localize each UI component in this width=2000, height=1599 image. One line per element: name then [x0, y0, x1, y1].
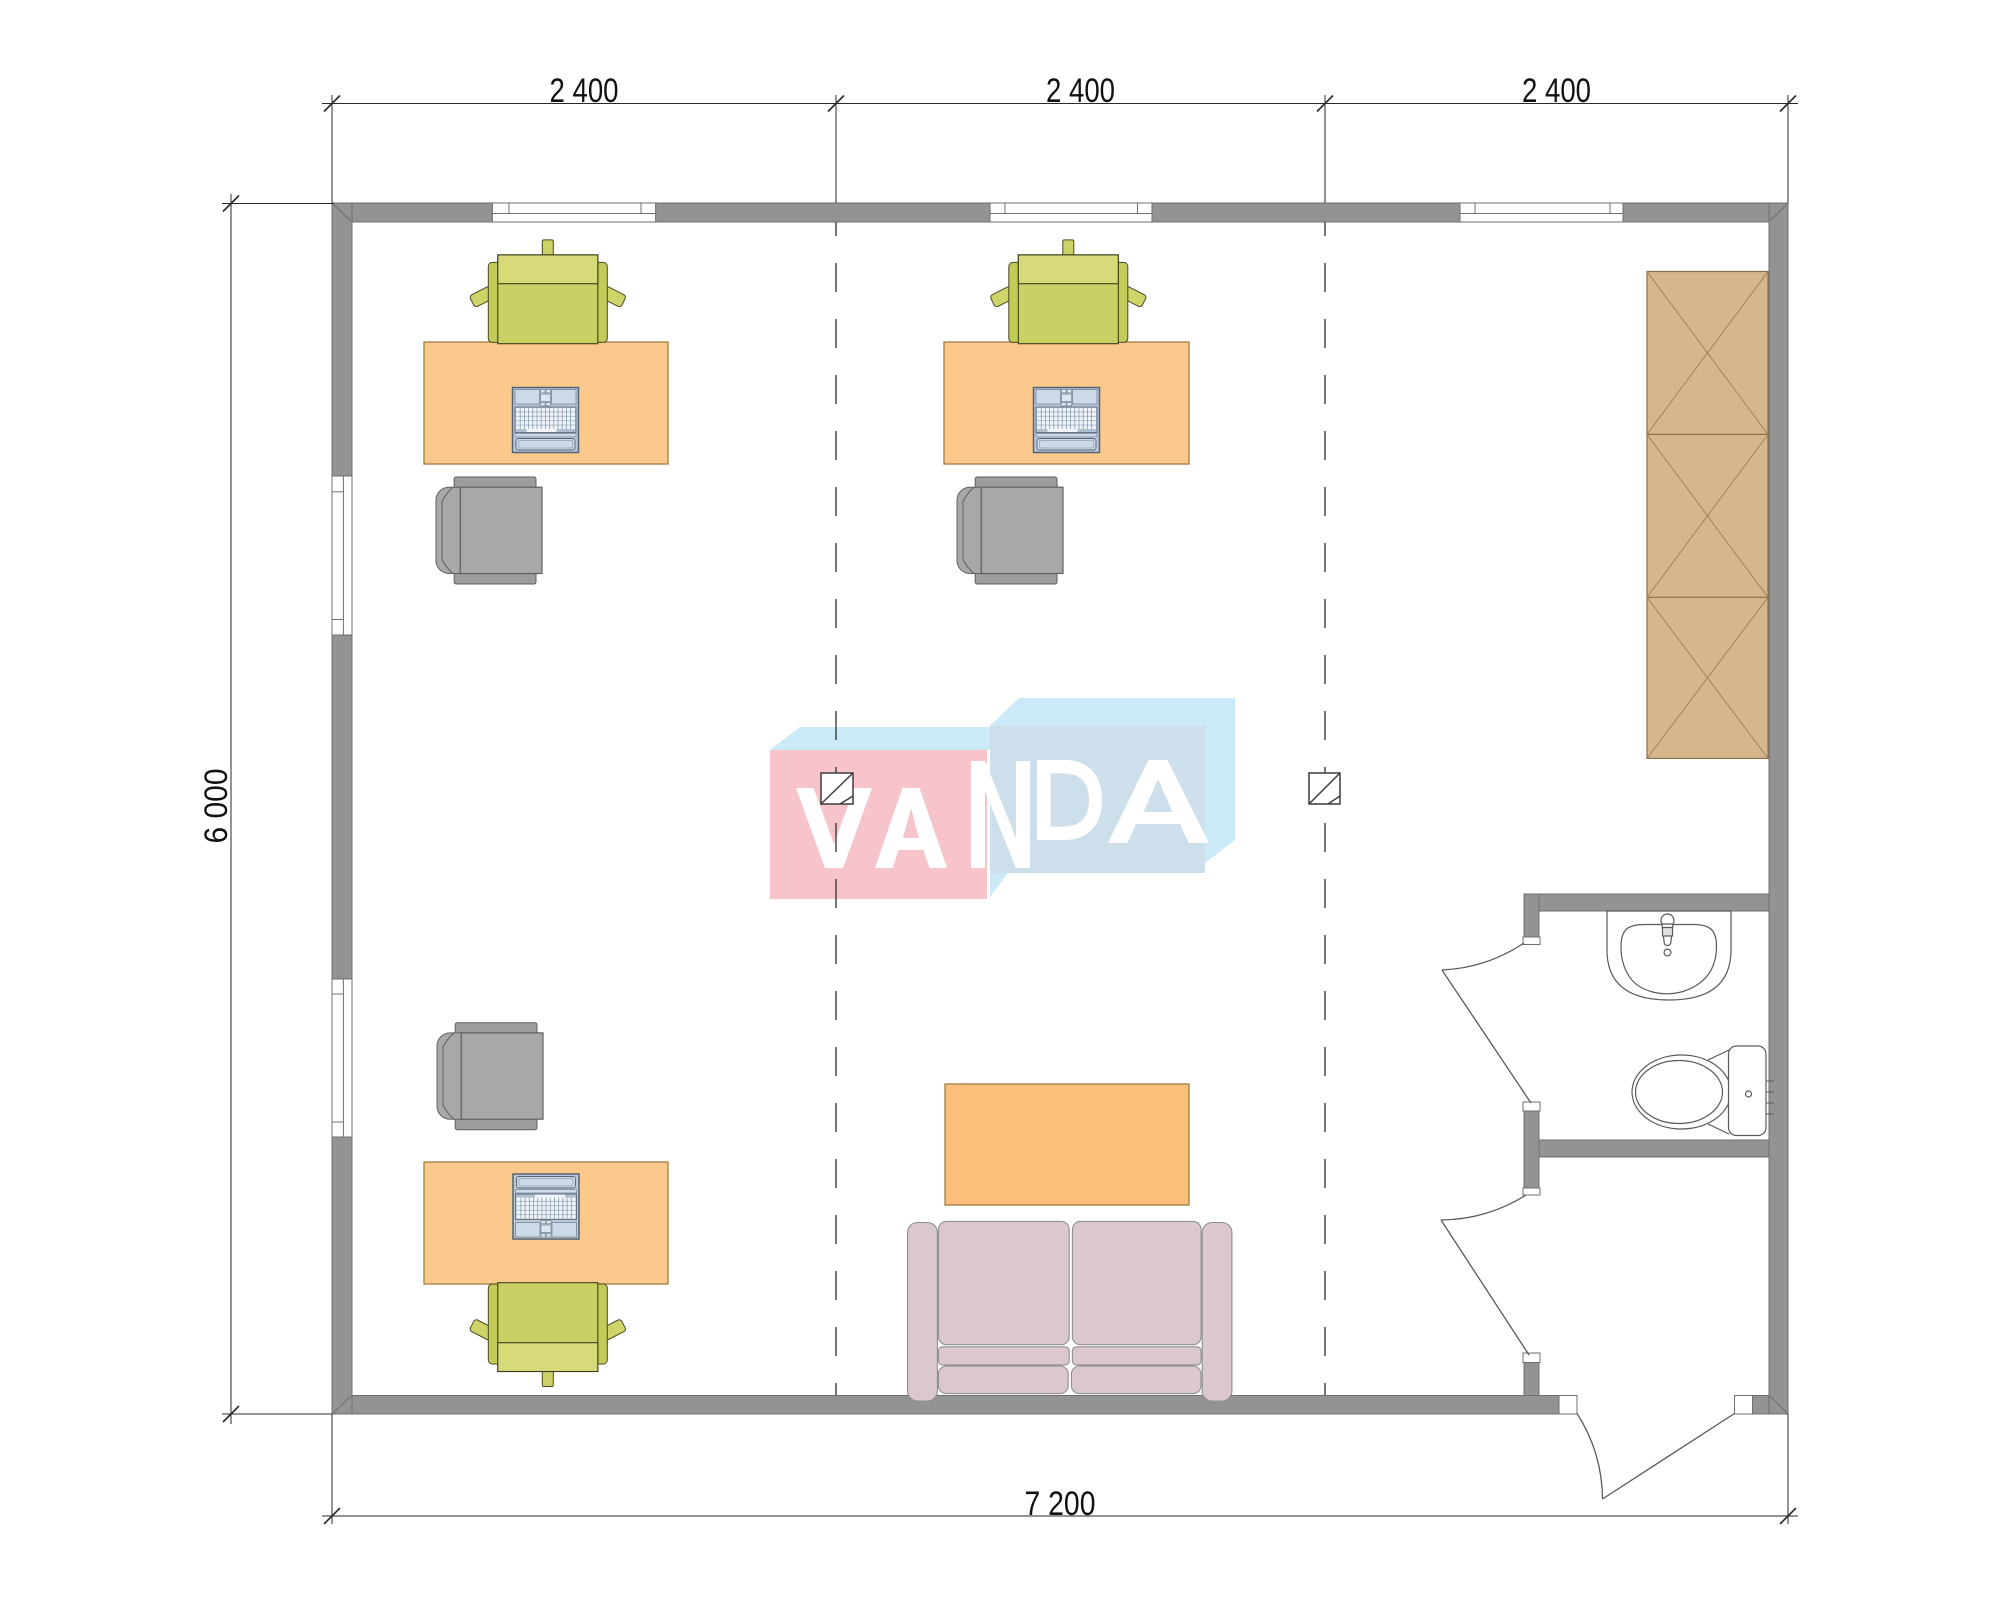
- svg-text:6 000: 6 000: [198, 769, 234, 844]
- svg-text:2 400: 2 400: [1046, 72, 1115, 110]
- svg-text:2 400: 2 400: [1522, 72, 1591, 110]
- svg-text:7 200: 7 200: [1025, 1485, 1096, 1523]
- svg-text:2 400: 2 400: [550, 72, 619, 110]
